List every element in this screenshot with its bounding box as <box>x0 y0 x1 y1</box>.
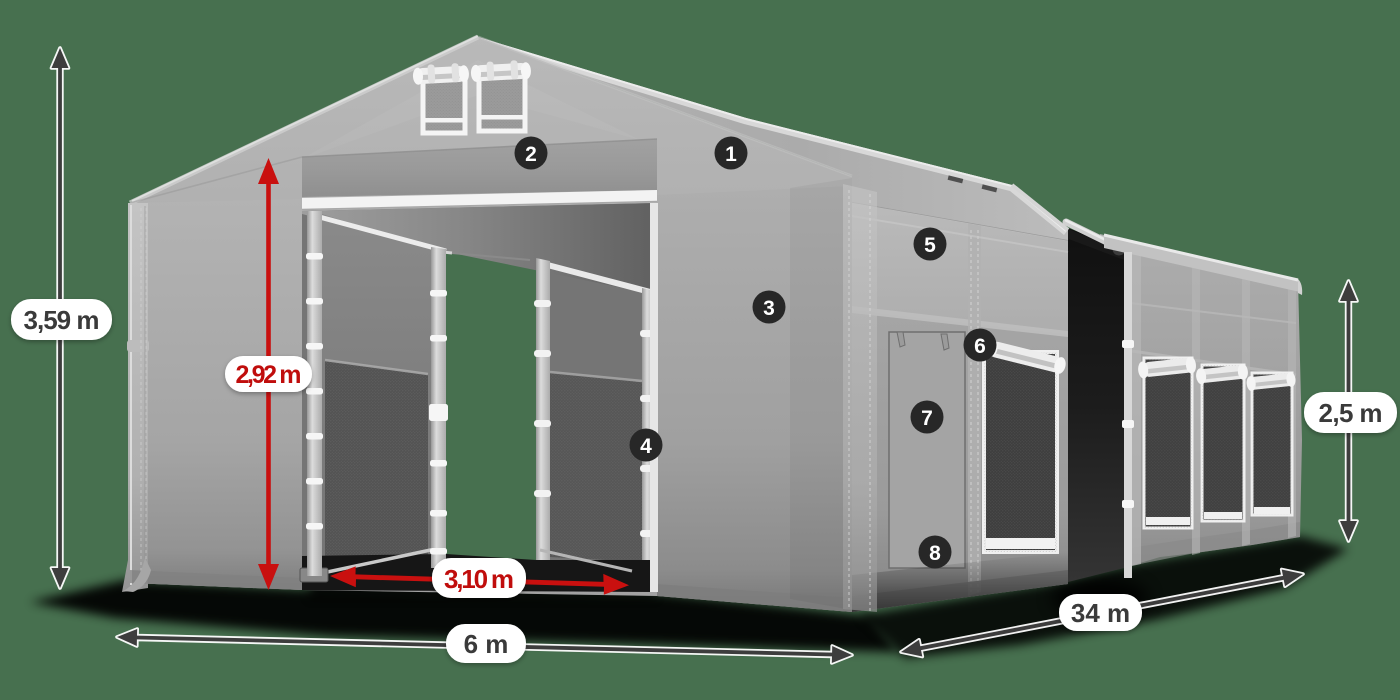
svg-text:4: 4 <box>640 435 652 458</box>
svg-text:8: 8 <box>929 542 941 565</box>
svg-text:5: 5 <box>924 234 936 257</box>
svg-text:3: 3 <box>763 297 775 320</box>
svg-text:7: 7 <box>921 407 933 430</box>
svg-text:2,92 m: 2,92 m <box>236 361 302 389</box>
svg-text:3,59 m: 3,59 m <box>24 305 100 335</box>
svg-text:2: 2 <box>525 143 537 166</box>
svg-text:34 m: 34 m <box>1071 598 1130 628</box>
svg-text:1: 1 <box>725 143 737 166</box>
svg-text:3,10 m: 3,10 m <box>444 564 514 594</box>
svg-text:6: 6 <box>974 335 986 358</box>
svg-text:6 m: 6 m <box>464 629 509 659</box>
svg-text:2,5 m: 2,5 m <box>1319 398 1383 428</box>
